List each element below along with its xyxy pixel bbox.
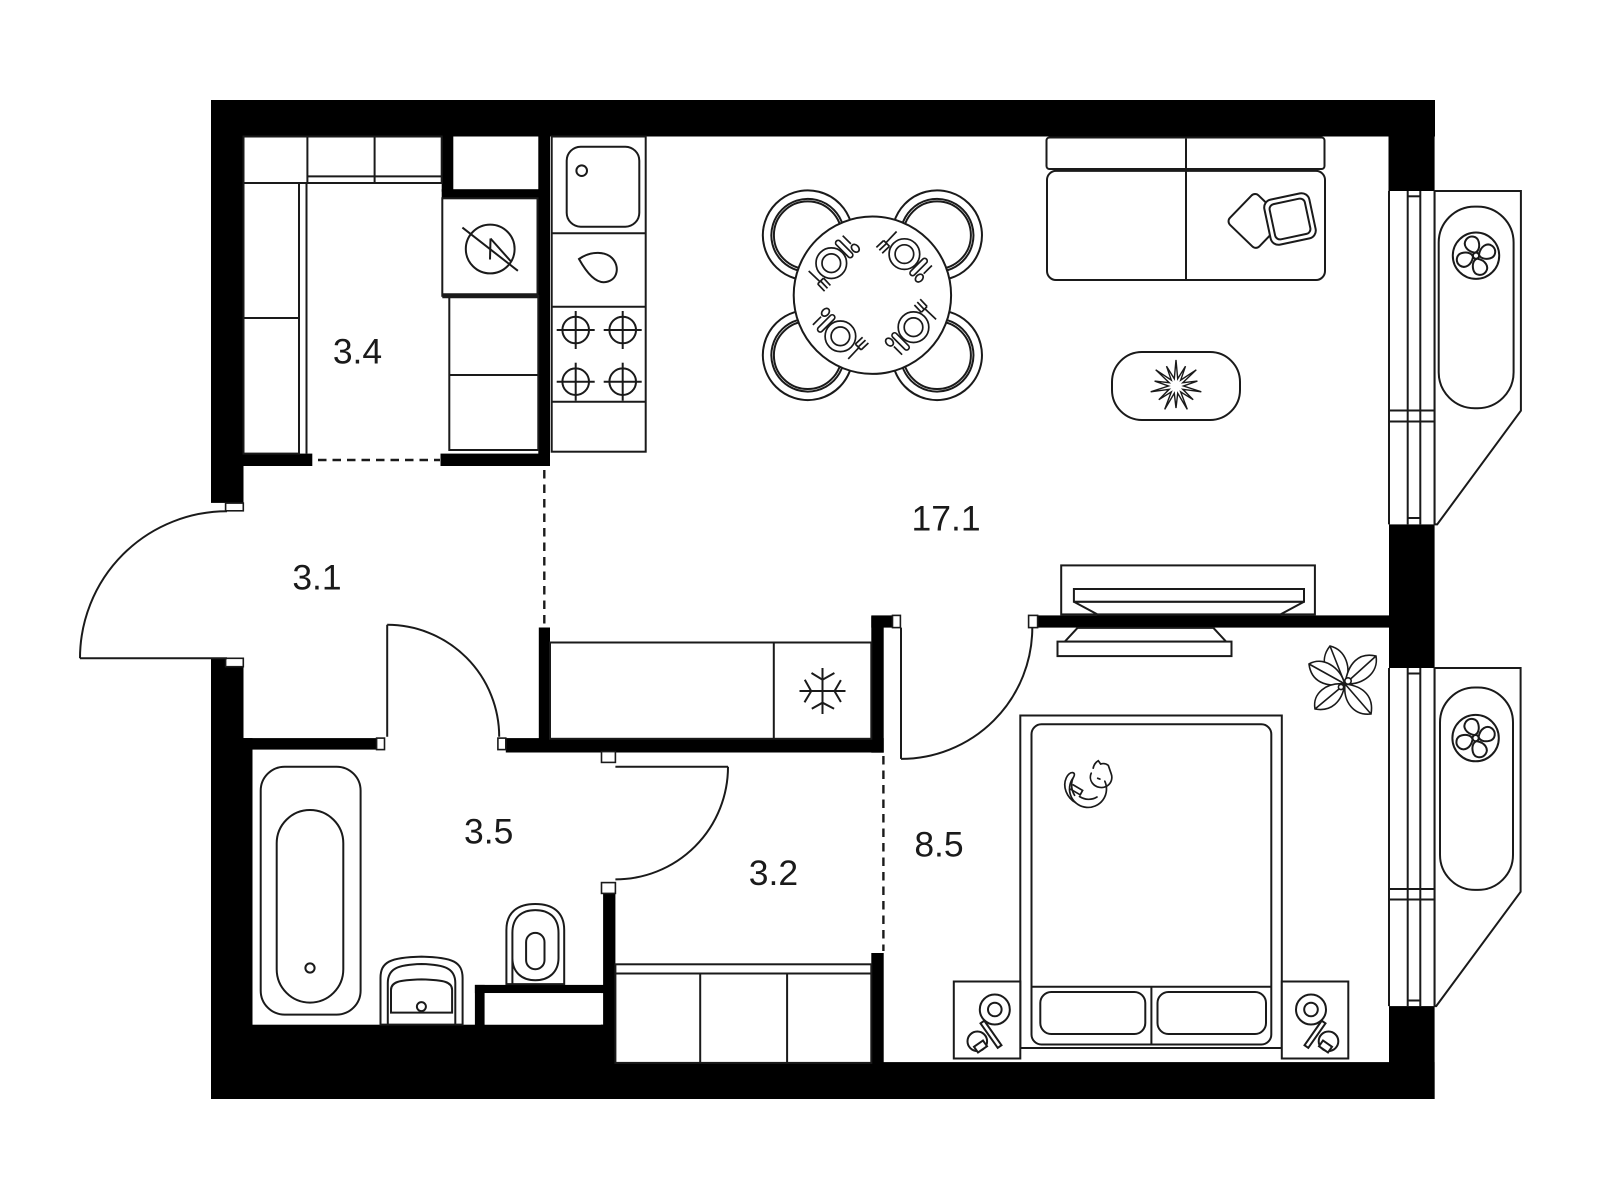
svg-text:3.2: 3.2 [749,853,798,893]
svg-text:3.4: 3.4 [333,332,382,372]
svg-text:8.5: 8.5 [914,825,963,865]
svg-text:17.1: 17.1 [912,499,981,539]
svg-text:3.1: 3.1 [292,558,341,598]
svg-text:3.5: 3.5 [464,812,513,852]
